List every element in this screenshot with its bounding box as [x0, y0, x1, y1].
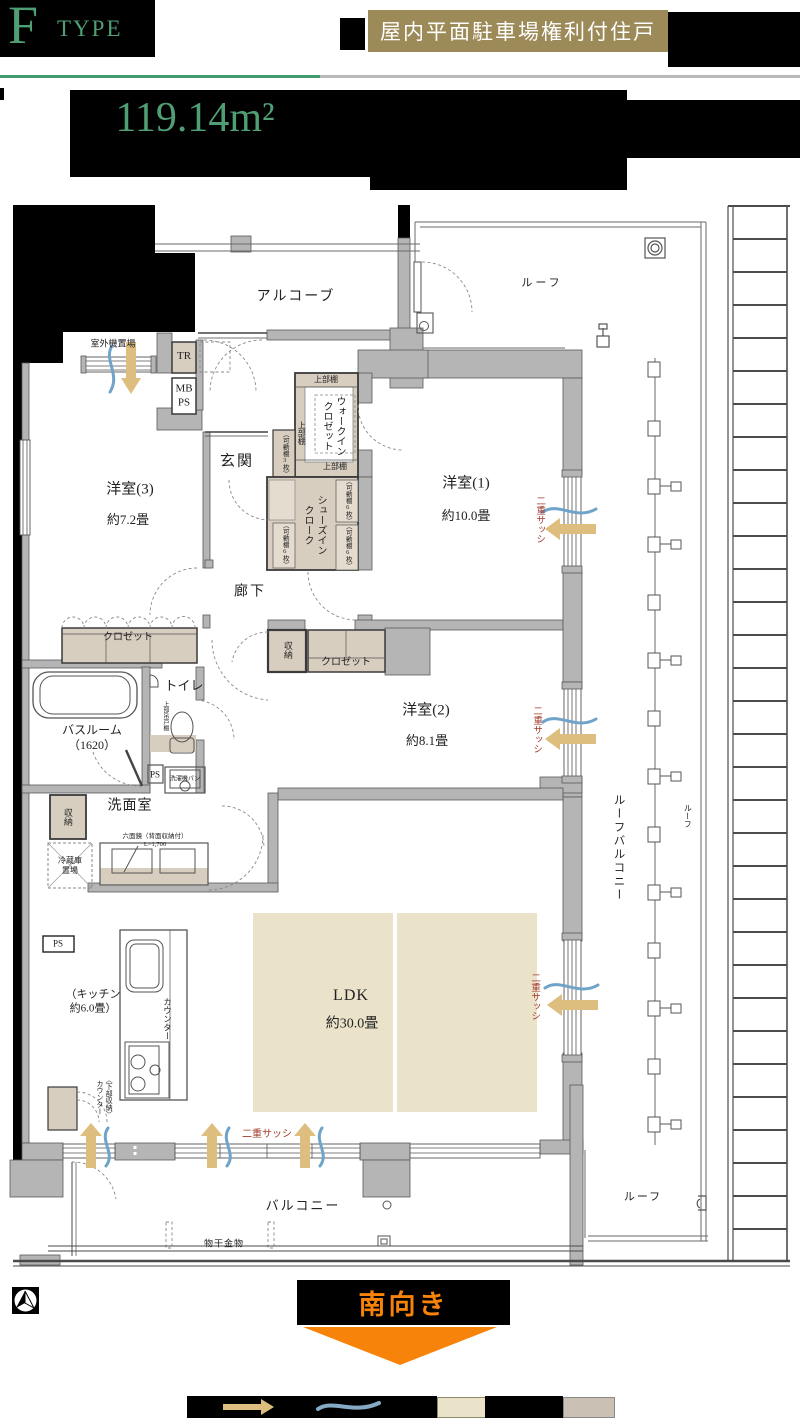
ldk-floor — [253, 913, 537, 1112]
floor-plan-drawing — [0, 0, 800, 1420]
floorplan-page: { "header": { "type_letter": "F", "type_… — [0, 0, 800, 1420]
roof-hatch-band — [728, 206, 790, 1262]
compass-icon — [12, 1287, 39, 1314]
south-direction-label: 南向き — [297, 1280, 510, 1325]
railing-clips — [648, 362, 681, 1132]
south-direction-arrow — [303, 1327, 497, 1365]
floor-area: 119.14m² — [70, 94, 320, 142]
